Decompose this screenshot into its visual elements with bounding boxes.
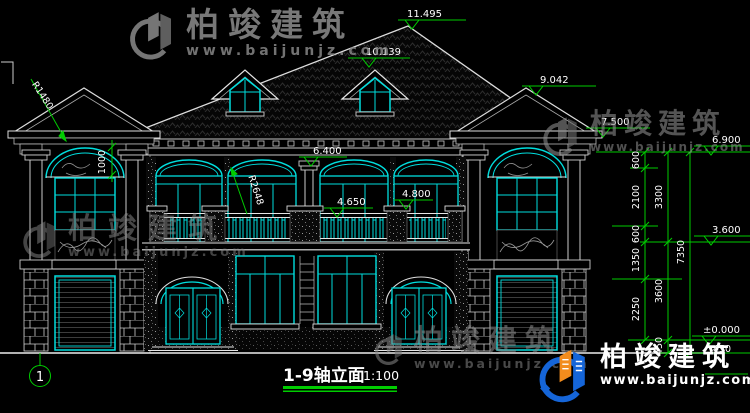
dim-second-floor: 3.600 [712,225,741,236]
elevation-marker-eave [694,146,750,155]
dim-radius-left: R1480 [29,80,55,112]
right-wing [450,131,602,351]
dim-ridge: 11.495 [407,9,442,20]
chimney [1,62,13,84]
dim-porch-cornice: 7.500 [601,117,630,128]
ground-floor-windows [231,256,381,329]
dim-dormer-ridge: 10.139 [366,47,401,58]
dim-chain-a-1: 2100 [631,185,642,209]
ground-window-right [313,256,381,329]
dim-column-top: 6.400 [313,146,342,157]
drawing-scale: 1:100 [363,368,399,383]
eave-dentil-band [143,138,473,156]
garage-door-left [55,276,115,350]
dim-chain-a-4: 2250 [631,297,642,321]
ground-window-left [231,256,299,329]
wing-window [497,178,557,230]
cad-elevation-screen: 11.495 10.139 9.042 7.500 6.900 3.600 ±0… [0,0,750,413]
title-block: 1-9轴立面 1:100 1 [36,365,399,386]
dim-chain-a-2: 600 [631,225,642,243]
elevation-marker-floor2 [694,236,750,245]
dim-arch-rise: 1000 [97,150,108,174]
dim-rail-top: 4.650 [337,197,366,208]
dim-ground: ±0.000 [703,325,740,336]
garage-door-right [497,276,557,350]
dim-base-offset: 450 [713,344,731,355]
elevation-drawing: 11.495 10.139 9.042 7.500 6.900 3.600 ±0… [0,0,750,413]
decorative-panel [497,230,557,260]
drawing-title: 1-9轴立面 [283,365,365,386]
dim-side-roof: 9.042 [540,75,569,86]
wing-window [55,178,115,230]
dim-chain-b-2: 450 [654,337,665,355]
dim-chain-c-0: 7350 [676,240,687,264]
dim-chain-a-0: 600 [631,151,642,169]
axis-bubble-label: 1 [36,370,44,385]
dim-eave: 6.900 [712,135,741,146]
dim-chain-b-0: 3300 [654,185,665,209]
decorative-panel [55,230,115,260]
left-wing [8,131,160,351]
dim-chain-a-3: 1350 [631,248,642,272]
dim-chain-b-1: 3600 [654,279,665,303]
dim-pier-top: 4.800 [402,189,431,200]
center-pier-ladder [300,256,314,324]
